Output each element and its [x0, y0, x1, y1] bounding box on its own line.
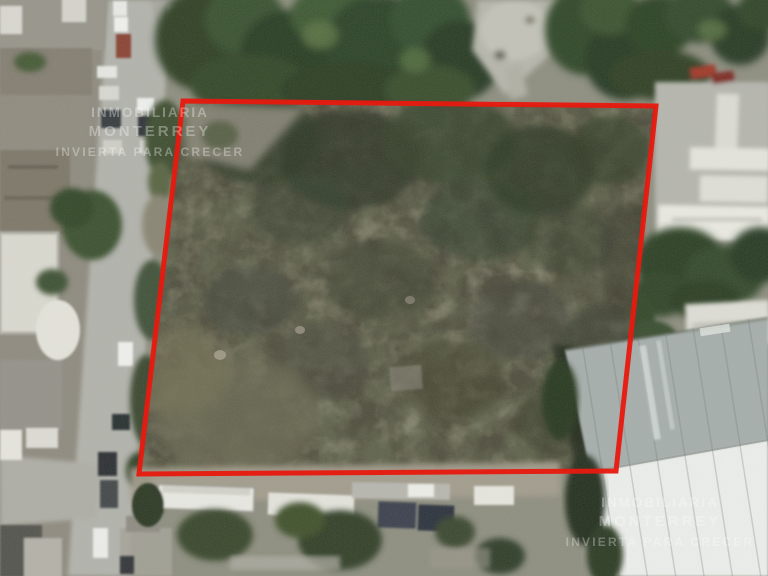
watermark-line: INVIERTA PARA CRECER: [566, 535, 755, 549]
aerial-photo-canvas: INMOBILIARIA MONTERREY INVIERTA PARA CRE…: [0, 0, 768, 576]
watermark-line: INVIERTA PARA CRECER: [56, 145, 245, 159]
watermark-line: MONTERREY: [599, 513, 722, 530]
satellite-image: INMOBILIARIA MONTERREY INVIERTA PARA CRE…: [0, 0, 768, 576]
watermark-line: INMOBILIARIA: [91, 105, 209, 120]
watermark-line: INMOBILIARIA: [601, 495, 719, 510]
photo-grain: [0, 0, 768, 576]
watermark-line: MONTERREY: [89, 123, 212, 140]
